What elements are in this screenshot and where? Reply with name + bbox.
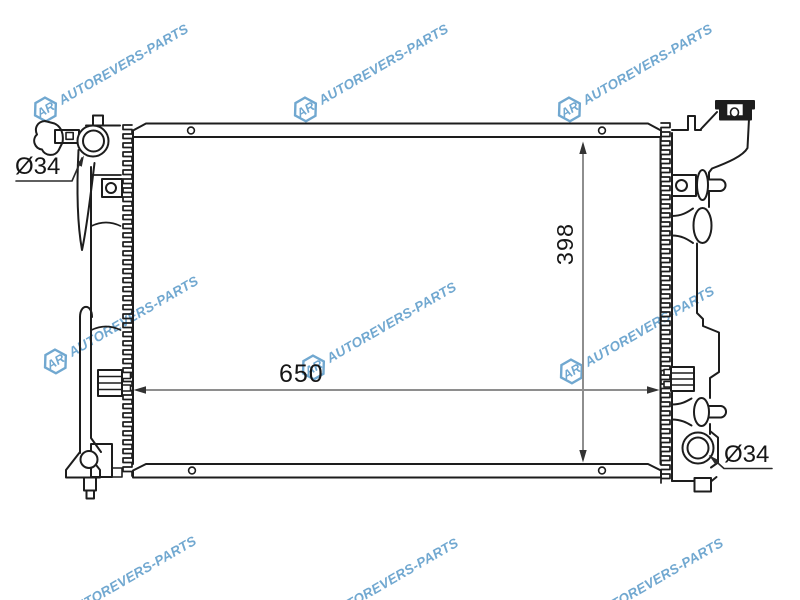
bottom-bracket (695, 478, 712, 492)
dimension-arrows (134, 142, 660, 463)
left-top-tab (93, 116, 103, 126)
bottom-rail (133, 464, 661, 478)
top-rail (133, 124, 661, 138)
core-outline (133, 124, 661, 478)
core-right-serrated-edge (661, 123, 670, 483)
core-width-dimension-label: 650 (279, 362, 324, 387)
core-left-serrated-edge (123, 125, 132, 476)
rail-hole (599, 127, 606, 134)
right-tank (664, 101, 754, 492)
outlet-diameter-label: Ø34 (724, 443, 769, 467)
filler-cap (716, 101, 754, 120)
core-height-dimension-label: 398 (554, 214, 580, 274)
upper-mount-boss (672, 208, 712, 243)
rail-hole (189, 467, 196, 474)
drawing-canvas (0, 0, 800, 600)
left-cooler-fitting (98, 370, 131, 396)
radiator-technical-drawing: AR AUTOREVERS-PARTS AR AUTOREVERS-PARTS … (0, 0, 800, 600)
upper-pipe-stub (697, 170, 726, 200)
inlet-flange-blob (34, 121, 63, 155)
lower-pipe-stub (709, 406, 727, 418)
dimension-lines (137, 145, 656, 459)
leader-arrows (77, 156, 719, 465)
lower-mount-boss (672, 398, 709, 426)
filler-neck (701, 112, 717, 129)
inlet-diameter-label: Ø34 (15, 155, 60, 179)
rail-hole (188, 127, 195, 134)
drain-plug (66, 444, 122, 499)
rail-hole (599, 467, 606, 474)
